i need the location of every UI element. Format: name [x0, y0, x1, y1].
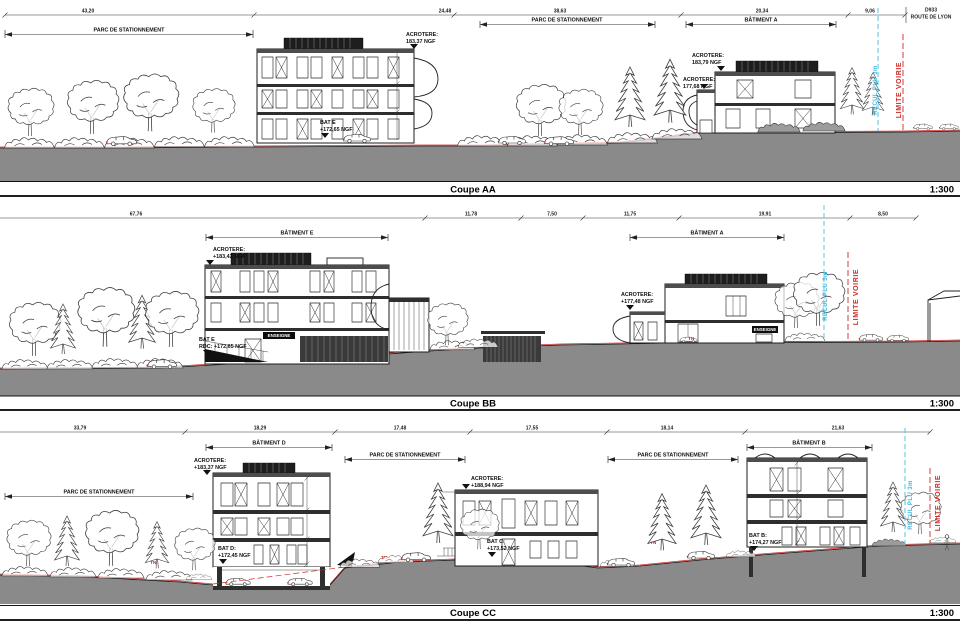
- span-parking-3-cc: PARC DE STATIONNEMENT: [608, 453, 738, 464]
- bat-value: +173,52 NGF: [487, 546, 520, 552]
- section-title: Coupe AA: [450, 185, 496, 196]
- acrotere-label: ACROTERE:: [692, 53, 724, 59]
- section-scale: 1:300: [930, 608, 954, 619]
- car: [687, 551, 715, 559]
- limite-voirie-label: LIMITE VOIRIE: [853, 269, 860, 325]
- regulation-lines-bb: RECUL PLU 3m LIMITE VOIRIE: [823, 205, 860, 342]
- span-parking-right-aa: PARC DE STATIONNEMENT: [480, 18, 655, 29]
- dim-label: 38,63: [554, 9, 567, 15]
- dim-label: 11,78: [465, 212, 477, 218]
- dim-label: 21,63: [832, 426, 845, 432]
- bat-label: BAT D:: [218, 546, 236, 552]
- recul-plu-label: RECUL PLU 3m: [823, 271, 829, 320]
- dim-label: 17,55: [526, 426, 539, 432]
- bat-value: +174,27 NGF: [749, 540, 782, 546]
- acrotere-value: 177,68 NGF: [683, 84, 713, 90]
- building-a-aa: [683, 61, 835, 133]
- tn-label: TN: [688, 336, 695, 342]
- title-bar-bb: Coupe BB 1:300: [0, 396, 960, 410]
- dim-label: 8,50: [878, 212, 888, 218]
- acrotere-value: +183,42 NGF: [213, 254, 246, 260]
- parking-label: PARC DE STATIONNEMENT: [370, 453, 442, 459]
- road-label: D933: [925, 8, 937, 14]
- neighbor-building-bb: [928, 291, 960, 342]
- recul-plu-label: RECUL PLU 3m: [908, 480, 914, 529]
- section-title: Coupe CC: [450, 608, 496, 619]
- parking-label: PARC DE STATIONNEMENT: [64, 490, 136, 496]
- dim-label: 7,50: [547, 212, 557, 218]
- acrotere-label: ACROTERE:: [406, 32, 438, 38]
- dim-label: 67,76: [130, 212, 143, 218]
- dim-label: 20,34: [756, 9, 769, 15]
- dim-label: 19,91: [759, 212, 772, 218]
- bat-label: BAT B:: [749, 533, 767, 539]
- road-label: ROUTE DE LYON: [911, 15, 952, 21]
- section-scale: 1:300: [930, 399, 954, 410]
- building-d-cc: [213, 463, 355, 590]
- building-label: BÂTIMENT E: [281, 230, 314, 237]
- sections-drawing: 43,20 24,48 38,63 20,34 9,06 D933 ROUTE …: [0, 0, 960, 622]
- enseigne-sign: ENSEIGNE: [754, 327, 777, 332]
- acrotere-label: ACROTERE:: [213, 247, 245, 253]
- acrotere-label: ACROTERE:: [683, 77, 715, 83]
- title-bar-cc: Coupe CC 1:300: [0, 606, 960, 621]
- acrotere-value: +177,48 NGF: [621, 299, 654, 305]
- acrotere-value: +188,94 NGF: [471, 483, 504, 489]
- dim-label: 24,48: [439, 9, 452, 15]
- building-label: BÂTIMENT A: [744, 17, 777, 24]
- dim-label: 11,75: [624, 212, 636, 218]
- building-a-bb: ENSEIGNE: [613, 274, 784, 343]
- title-bar-aa: Coupe AA 1:300: [0, 182, 960, 197]
- enseigne-sign: ENSEIGNE: [268, 333, 291, 338]
- architectural-section-sheet: 43,20 24,48 38,63 20,34 9,06 D933 ROUTE …: [0, 0, 960, 622]
- span-parking-2-cc: PARC DE STATIONNEMENT: [345, 453, 465, 464]
- dim-label: 9,06: [865, 9, 875, 15]
- dim-label: 18,14: [661, 426, 674, 432]
- span-batiment-d-cc: BÂTIMENT D: [206, 440, 332, 452]
- regulation-lines-cc: RECUL PLU 3m LIMITE VOIRIE: [905, 428, 942, 545]
- bat-value: +172,65 NGF: [320, 127, 353, 133]
- span-batiment-a-aa: BÂTIMENT A: [686, 17, 836, 29]
- acrotere-label: ACROTERE:: [194, 458, 226, 464]
- parking-label: PARC DE STATIONNEMENT: [94, 28, 166, 34]
- bat-value: RDC: +172,65 NGF: [199, 344, 247, 350]
- parking-label: PARC DE STATIONNEMENT: [532, 18, 604, 24]
- acrotere-value: 183,79 NGF: [692, 60, 722, 66]
- car: [859, 334, 883, 341]
- coupe-cc-section: 33,79 18,29 17,48 17,55 18,14 21,63 BÂTI…: [0, 426, 960, 621]
- dim-label: 17,48: [394, 426, 407, 432]
- dim-chain-bb: 67,76 11,78 7,50 11,75 19,91 8,50: [0, 212, 919, 221]
- building-label: BÂTIMENT A: [690, 230, 723, 237]
- acrotere-label: ACROTERE:: [471, 476, 503, 482]
- limite-voirie-label: LIMITE VOIRIE: [935, 475, 942, 531]
- bat-value: +172,45 NGF: [218, 553, 251, 559]
- span-batiment-e-bb: BÂTIMENT E: [206, 230, 388, 242]
- span-batiment-b-cc: BÂTIMENT B: [747, 440, 872, 452]
- recul-plu-label: RECUL PLU 3m: [873, 65, 879, 114]
- limite-voirie-label: LIMITE VOIRIE: [896, 62, 903, 118]
- bat-label: BAT E: [320, 120, 336, 126]
- span-batiment-a-bb: BÂTIMENT A: [630, 230, 784, 242]
- car: [913, 124, 932, 130]
- dim-label: 33,79: [74, 426, 87, 432]
- coupe-aa-section: 43,20 24,48 38,63 20,34 9,06 D933 ROUTE …: [0, 7, 960, 196]
- dim-label: 18,29: [254, 426, 267, 432]
- span-parking-1-cc: PARC DE STATIONNEMENT: [5, 490, 193, 501]
- building-label: BÂTIMENT B: [792, 440, 825, 447]
- dim-label: 43,20: [82, 9, 95, 15]
- section-scale: 1:300: [930, 185, 954, 196]
- coupe-bb-section: 67,76 11,78 7,50 11,75 19,91 8,50 BÂTIME…: [0, 205, 960, 410]
- building-label: BÂTIMENT D: [252, 440, 285, 447]
- dim-chain-aa: 43,20 24,48 38,63 20,34 9,06 D933 ROUTE …: [3, 7, 952, 23]
- section-title: Coupe BB: [450, 399, 496, 410]
- parking-label: PARC DE STATIONNEMENT: [638, 453, 710, 459]
- bat-label: BAT C:: [487, 539, 505, 545]
- bat-label: BAT E: [199, 337, 215, 343]
- dim-chain-cc: 33,79 18,29 17,48 17,55 18,14 21,63: [0, 426, 933, 435]
- acrotere-label: ACROTERE:: [621, 292, 653, 298]
- car: [939, 124, 958, 130]
- regulation-lines-aa: RECUL PLU 3m LIMITE VOIRIE: [873, 8, 903, 132]
- span-parking-left-aa: PARC DE STATIONNEMENT: [5, 28, 253, 39]
